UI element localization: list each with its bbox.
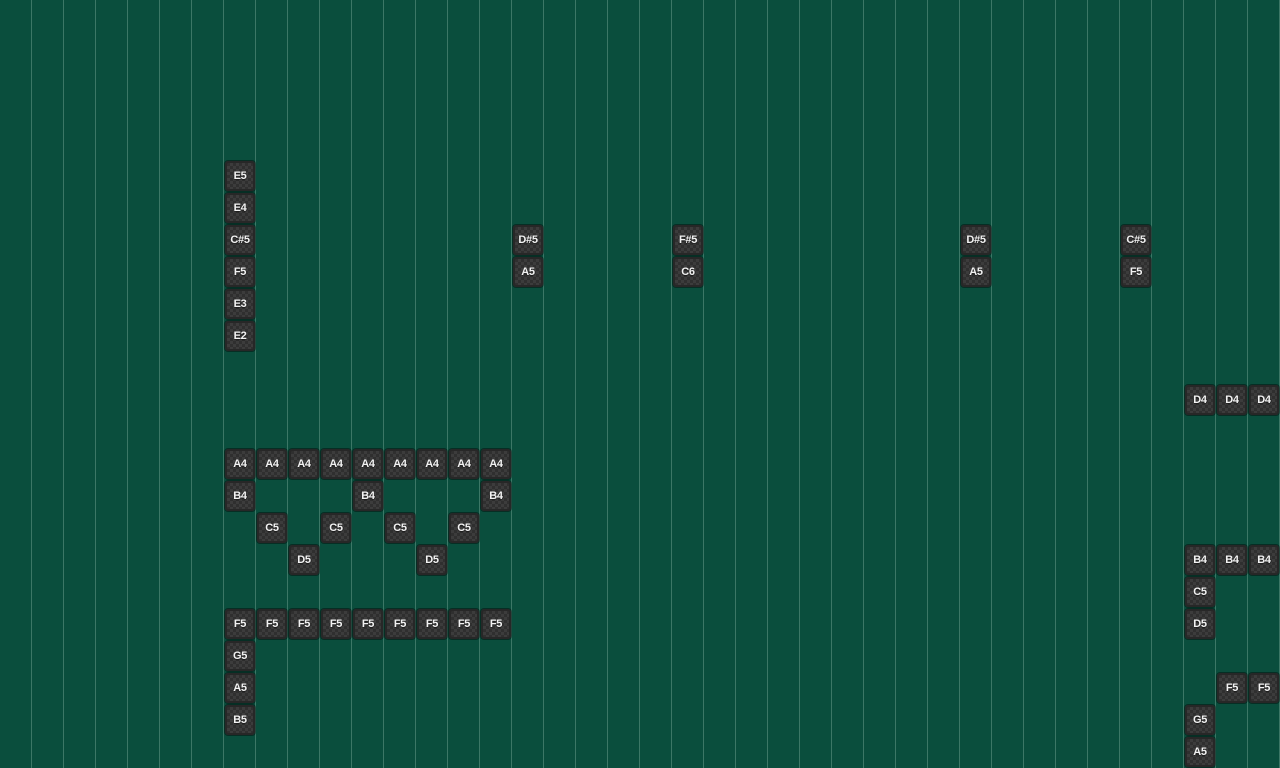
note-tile-f5[interactable]: F5 xyxy=(481,609,511,639)
note-tile-f5[interactable]: F5 xyxy=(353,609,383,639)
note-tile-b4[interactable]: B4 xyxy=(1185,545,1215,575)
note-label: F5 xyxy=(394,619,406,630)
note-tile-b4[interactable]: B4 xyxy=(225,481,255,511)
note-label: D#5 xyxy=(966,235,985,246)
note-label: A5 xyxy=(521,267,534,278)
note-tile-a5[interactable]: A5 xyxy=(961,257,991,287)
note-tile-f5[interactable]: F5 xyxy=(321,609,351,639)
note-label: F5 xyxy=(1258,683,1270,694)
note-label: F5 xyxy=(490,619,502,630)
note-tile-f5[interactable]: F5 xyxy=(417,609,447,639)
note-label: B5 xyxy=(233,715,246,726)
note-label: F5 xyxy=(1226,683,1238,694)
note-tile-a4[interactable]: A4 xyxy=(257,449,287,479)
note-label: F5 xyxy=(330,619,342,630)
note-label: D#5 xyxy=(518,235,537,246)
note-tile-e5[interactable]: E5 xyxy=(225,161,255,191)
note-label: A4 xyxy=(489,459,502,470)
note-label: D5 xyxy=(1193,619,1206,630)
note-tile-f5[interactable]: F5 xyxy=(257,609,287,639)
note-label: F5 xyxy=(426,619,438,630)
note-tile-a5[interactable]: A5 xyxy=(225,673,255,703)
note-label: C5 xyxy=(1193,587,1206,598)
note-label: D4 xyxy=(1225,395,1238,406)
note-label: A4 xyxy=(393,459,406,470)
note-tile-f5[interactable]: F5 xyxy=(449,609,479,639)
note-label: B4 xyxy=(1257,555,1270,566)
note-label: F5 xyxy=(234,267,246,278)
note-label: F5 xyxy=(458,619,470,630)
note-tile-d4[interactable]: D4 xyxy=(1185,385,1215,415)
note-label: F#5 xyxy=(679,235,697,246)
note-label: F5 xyxy=(234,619,246,630)
note-tile-b4[interactable]: B4 xyxy=(481,481,511,511)
note-tile-a4[interactable]: A4 xyxy=(417,449,447,479)
note-tile-a5[interactable]: A5 xyxy=(513,257,543,287)
note-label: E5 xyxy=(234,171,247,182)
note-label: C5 xyxy=(457,523,470,534)
note-label: B4 xyxy=(1225,555,1238,566)
note-label: C6 xyxy=(681,267,694,278)
note-tile-a4[interactable]: A4 xyxy=(353,449,383,479)
note-tile-c5[interactable]: C5 xyxy=(449,513,479,543)
note-tile-a4[interactable]: A4 xyxy=(385,449,415,479)
note-label: B4 xyxy=(489,491,502,502)
note-label: B4 xyxy=(233,491,246,502)
note-tile-csharp5[interactable]: C#5 xyxy=(225,225,255,255)
note-label: A4 xyxy=(457,459,470,470)
note-tile-e3[interactable]: E3 xyxy=(225,289,255,319)
note-label: A5 xyxy=(233,683,246,694)
note-label: G5 xyxy=(1193,715,1207,726)
note-label: A4 xyxy=(361,459,374,470)
note-tile-fsharp5[interactable]: F#5 xyxy=(673,225,703,255)
note-tile-b4[interactable]: B4 xyxy=(1217,545,1247,575)
note-tile-f5[interactable]: F5 xyxy=(1121,257,1151,287)
note-tile-c6[interactable]: C6 xyxy=(673,257,703,287)
note-label: B4 xyxy=(1193,555,1206,566)
note-tile-d5[interactable]: D5 xyxy=(289,545,319,575)
note-label: F5 xyxy=(1130,267,1142,278)
note-label: C5 xyxy=(329,523,342,534)
note-tile-d4[interactable]: D4 xyxy=(1217,385,1247,415)
note-tile-dsharp5[interactable]: D#5 xyxy=(961,225,991,255)
note-tile-f5[interactable]: F5 xyxy=(225,609,255,639)
note-label: F5 xyxy=(362,619,374,630)
note-tile-c5[interactable]: C5 xyxy=(321,513,351,543)
note-tile-csharp5[interactable]: C#5 xyxy=(1121,225,1151,255)
note-label: A4 xyxy=(297,459,310,470)
note-label: A4 xyxy=(265,459,278,470)
note-label: A5 xyxy=(969,267,982,278)
note-label: A4 xyxy=(329,459,342,470)
note-tile-b5[interactable]: B5 xyxy=(225,705,255,735)
note-tile-g5[interactable]: G5 xyxy=(225,641,255,671)
note-label: E2 xyxy=(234,331,247,342)
note-label: D5 xyxy=(425,555,438,566)
note-tile-a5[interactable]: A5 xyxy=(1185,737,1215,767)
note-label: C#5 xyxy=(230,235,249,246)
note-tile-a4[interactable]: A4 xyxy=(481,449,511,479)
note-label: D5 xyxy=(297,555,310,566)
note-label: A5 xyxy=(1193,747,1206,758)
note-tile-d5[interactable]: D5 xyxy=(1185,609,1215,639)
note-label: F5 xyxy=(266,619,278,630)
note-tile-a4[interactable]: A4 xyxy=(289,449,319,479)
note-label: D4 xyxy=(1257,395,1270,406)
note-tile-d4[interactable]: D4 xyxy=(1249,385,1279,415)
note-tile-f5[interactable]: F5 xyxy=(1249,673,1279,703)
note-tile-c5[interactable]: C5 xyxy=(257,513,287,543)
note-label: A4 xyxy=(425,459,438,470)
note-tile-f5[interactable]: F5 xyxy=(225,257,255,287)
note-label: E4 xyxy=(234,203,247,214)
note-tile-a4[interactable]: A4 xyxy=(225,449,255,479)
note-tile-d5[interactable]: D5 xyxy=(417,545,447,575)
note-tile-a4[interactable]: A4 xyxy=(449,449,479,479)
note-label: C5 xyxy=(393,523,406,534)
note-label: A4 xyxy=(233,459,246,470)
note-label: B4 xyxy=(361,491,374,502)
note-tile-c5[interactable]: C5 xyxy=(385,513,415,543)
note-label: E3 xyxy=(234,299,247,310)
note-tile-g5[interactable]: G5 xyxy=(1185,705,1215,735)
note-label: F5 xyxy=(298,619,310,630)
note-label: C5 xyxy=(265,523,278,534)
note-label: D4 xyxy=(1193,395,1206,406)
note-tile-b4[interactable]: B4 xyxy=(1249,545,1279,575)
note-tile-f5[interactable]: F5 xyxy=(289,609,319,639)
note-tile-dsharp5[interactable]: D#5 xyxy=(513,225,543,255)
note-tile-c5[interactable]: C5 xyxy=(1185,577,1215,607)
sequencer-grid[interactable]: E5E4C#5D#5F#5D#5C#5F5A5C6A5F5E3E2D4D4D4A… xyxy=(0,0,1280,768)
note-label: C#5 xyxy=(1126,235,1145,246)
note-tile-a4[interactable]: A4 xyxy=(321,449,351,479)
note-tile-b4[interactable]: B4 xyxy=(353,481,383,511)
note-tile-e2[interactable]: E2 xyxy=(225,321,255,351)
note-label: G5 xyxy=(233,651,247,662)
note-tile-f5[interactable]: F5 xyxy=(1217,673,1247,703)
note-tile-e4[interactable]: E4 xyxy=(225,193,255,223)
note-tile-f5[interactable]: F5 xyxy=(385,609,415,639)
